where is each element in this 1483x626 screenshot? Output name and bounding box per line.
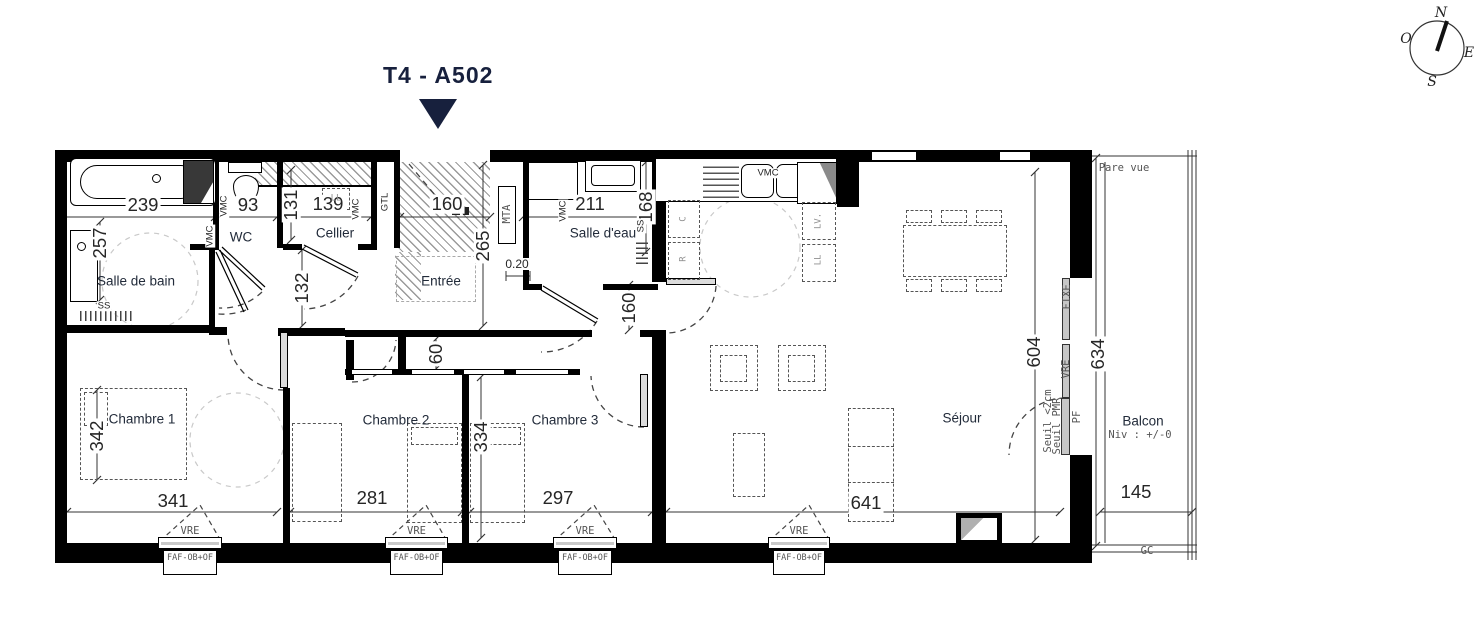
wall-opening: [872, 152, 916, 160]
wall-segment: [346, 340, 354, 380]
armchair-2-seat: [788, 355, 815, 382]
page-title: T4 - A502: [383, 62, 493, 89]
wall-segment: [371, 162, 377, 248]
fixe-window-label: FIXE: [1062, 284, 1073, 309]
window-vre-label: VRE: [790, 526, 809, 537]
window-faf-box: FAF-OB+OF: [163, 550, 217, 575]
dimension-label: 60: [427, 342, 446, 367]
wall-segment: [1070, 162, 1092, 278]
wall-segment: [283, 244, 302, 250]
wall-segment: [278, 328, 345, 336]
dimension-label: 211: [573, 195, 607, 214]
sofa-divider: [848, 446, 894, 447]
window-frame: [768, 537, 830, 549]
floor-plan: T4 - A502 Salle de bainWCCellierEntréeSa…: [0, 0, 1483, 626]
mta-label: MTA: [502, 205, 513, 224]
dining-chair: [906, 279, 932, 292]
dimension-label: 341: [156, 492, 191, 511]
sejour-shaft: [956, 513, 1002, 545]
kitchen-shaft: [797, 162, 837, 204]
plan-linework: [0, 0, 1483, 626]
dimension-label: 239: [126, 196, 161, 215]
dimension-label: 297: [541, 489, 576, 508]
wall-opening: [516, 370, 568, 374]
vmc-label-salle-eau: VMC: [558, 199, 568, 222]
compass-o: O: [1400, 32, 1411, 46]
coffee-table: [733, 433, 765, 497]
appliance-ll-label: LL: [815, 255, 824, 266]
window-frame: [158, 537, 222, 549]
toilet-tank: [228, 162, 262, 173]
wall-segment: [640, 330, 666, 337]
wall-segment: [837, 150, 859, 207]
wall-segment: [55, 325, 215, 333]
ss-label-sdb: SS: [97, 301, 112, 311]
dining-chair: [941, 279, 967, 292]
wall-segment: [398, 337, 406, 373]
room-label-entr-e: Entrée: [421, 274, 461, 288]
compass-e: E: [1464, 46, 1474, 60]
dimension-label: 334: [472, 420, 491, 455]
window-faf-label: FAF-OB+OF: [774, 553, 824, 563]
bed-pillow-chambre2: [411, 427, 458, 445]
unit-marker-triangle: [419, 99, 457, 129]
wall-segment: [209, 327, 227, 335]
shower-shaft: [183, 160, 214, 204]
window-faf-box: FAF-OB+OF: [773, 550, 825, 575]
vmc-label-wc: VMC: [219, 194, 229, 217]
dimension-label: 93: [236, 196, 261, 215]
dining-chair: [976, 210, 1002, 223]
dimension-label: 634: [1089, 337, 1108, 372]
towel-radiator-sdb: [80, 311, 132, 321]
window-frame: [553, 537, 617, 549]
wall-segment: [345, 330, 580, 337]
wall-segment: [283, 388, 290, 543]
appliance-c-label: C: [680, 216, 689, 221]
balcony-level-label: Niv : +/-0: [1108, 430, 1171, 441]
window-vre-label: VRE: [181, 526, 200, 537]
window-glass: [771, 542, 827, 545]
bathtub-faucet: [152, 174, 161, 183]
dimension-label: 604: [1025, 335, 1044, 370]
dimension-label: 342: [88, 419, 107, 454]
window-frame: [385, 537, 448, 549]
vmc-label-sdb: VMC: [205, 224, 215, 247]
wall-opening: [412, 370, 454, 374]
dimension-label: 265: [474, 229, 493, 264]
window-faf-label: FAF-OB+OF: [559, 553, 611, 563]
gtl-label: GTL: [380, 192, 390, 212]
cellier-ll-label: LL: [331, 195, 342, 204]
pare-vue-label: Pare vue: [1099, 163, 1150, 174]
wall-segment: [652, 335, 666, 550]
shower-salle-eau: [528, 162, 578, 200]
window-faf-box: FAF-OB+OF: [390, 550, 443, 575]
wall-segment: [462, 375, 469, 543]
dimension-label: 160: [430, 195, 465, 214]
vre-bay-label: VRE: [1061, 360, 1072, 379]
wall-segment: [209, 250, 215, 330]
compass-s: S: [1427, 75, 1437, 89]
window-vre-label: VRE: [407, 526, 426, 537]
room-label-cellier: Cellier: [316, 226, 354, 240]
wall-segment: [603, 284, 658, 290]
pf-door-label: PF: [1072, 411, 1083, 424]
ss-label-salle-eau: SS: [636, 219, 646, 234]
room-label-chambre-3: Chambre 3: [532, 413, 599, 427]
dining-chair: [906, 210, 932, 223]
room-label-balcon: Balcon: [1122, 414, 1163, 428]
room-label-s-jour: Séjour: [942, 411, 981, 425]
armchair-1-seat: [720, 355, 747, 382]
wardrobe-chambre2: [292, 423, 342, 522]
window-glass: [161, 542, 219, 545]
gc-label: GC: [1141, 546, 1154, 557]
window-faf-label: FAF-OB+OF: [164, 553, 216, 563]
wall-segment: [1070, 455, 1092, 543]
compass-needle: [1437, 21, 1447, 51]
dimension-label: 160: [620, 291, 639, 326]
dimension-label: 257: [91, 226, 110, 261]
door-leaf-chambre3: [640, 374, 648, 427]
room-label-salle-d-eau: Salle d'eau: [570, 226, 636, 240]
dimension-label: 145: [1119, 483, 1154, 502]
vmc-label-cellier: VMC: [351, 197, 361, 220]
wall-segment: [394, 162, 400, 248]
washbasin-inner: [591, 165, 635, 186]
wall-segment: [55, 150, 67, 563]
wall-segment: [358, 244, 377, 250]
dimension-label: 641: [849, 494, 884, 513]
window-glass: [388, 542, 445, 545]
vmc-label-kitchen: VMC: [756, 168, 779, 178]
room-label-chambre-1: Chambre 1: [109, 412, 176, 426]
door-leaf-chambre1: [280, 332, 288, 388]
window-faf-box: FAF-OB+OF: [558, 550, 612, 575]
dimension-label: 132: [293, 271, 312, 306]
wall-segment: [580, 330, 592, 337]
wall-opening: [1000, 152, 1030, 160]
window-faf-label: FAF-OB+OF: [391, 553, 442, 563]
seuil-pmr-label: Seuil PMR: [1052, 398, 1063, 455]
wall-opening: [464, 370, 504, 374]
wall-opening: [352, 370, 392, 374]
dining-chair: [976, 279, 1002, 292]
compass-n: N: [1435, 6, 1447, 20]
wall-segment: [523, 284, 542, 290]
window-glass: [556, 542, 614, 545]
dimension-label: 0.20: [504, 258, 529, 270]
dimension-label: 131: [282, 188, 301, 223]
vanity-drain: [77, 242, 86, 251]
appliance-r-label: R: [680, 256, 689, 261]
appliance-lv-label: LV.: [815, 213, 824, 229]
dining-chair: [941, 210, 967, 223]
room-label-salle-de-bain: Salle de bain: [97, 274, 175, 288]
window-vre-label: VRE: [576, 526, 595, 537]
towel-radiator-salle-eau: [636, 240, 648, 264]
dimension-label: 281: [355, 489, 390, 508]
kitchen-drainer: [703, 165, 739, 198]
room-label-wc: WC: [230, 230, 253, 244]
room-label-chambre-2: Chambre 2: [363, 413, 430, 427]
dining-table: [903, 225, 1007, 277]
sofa-divider: [848, 482, 894, 483]
